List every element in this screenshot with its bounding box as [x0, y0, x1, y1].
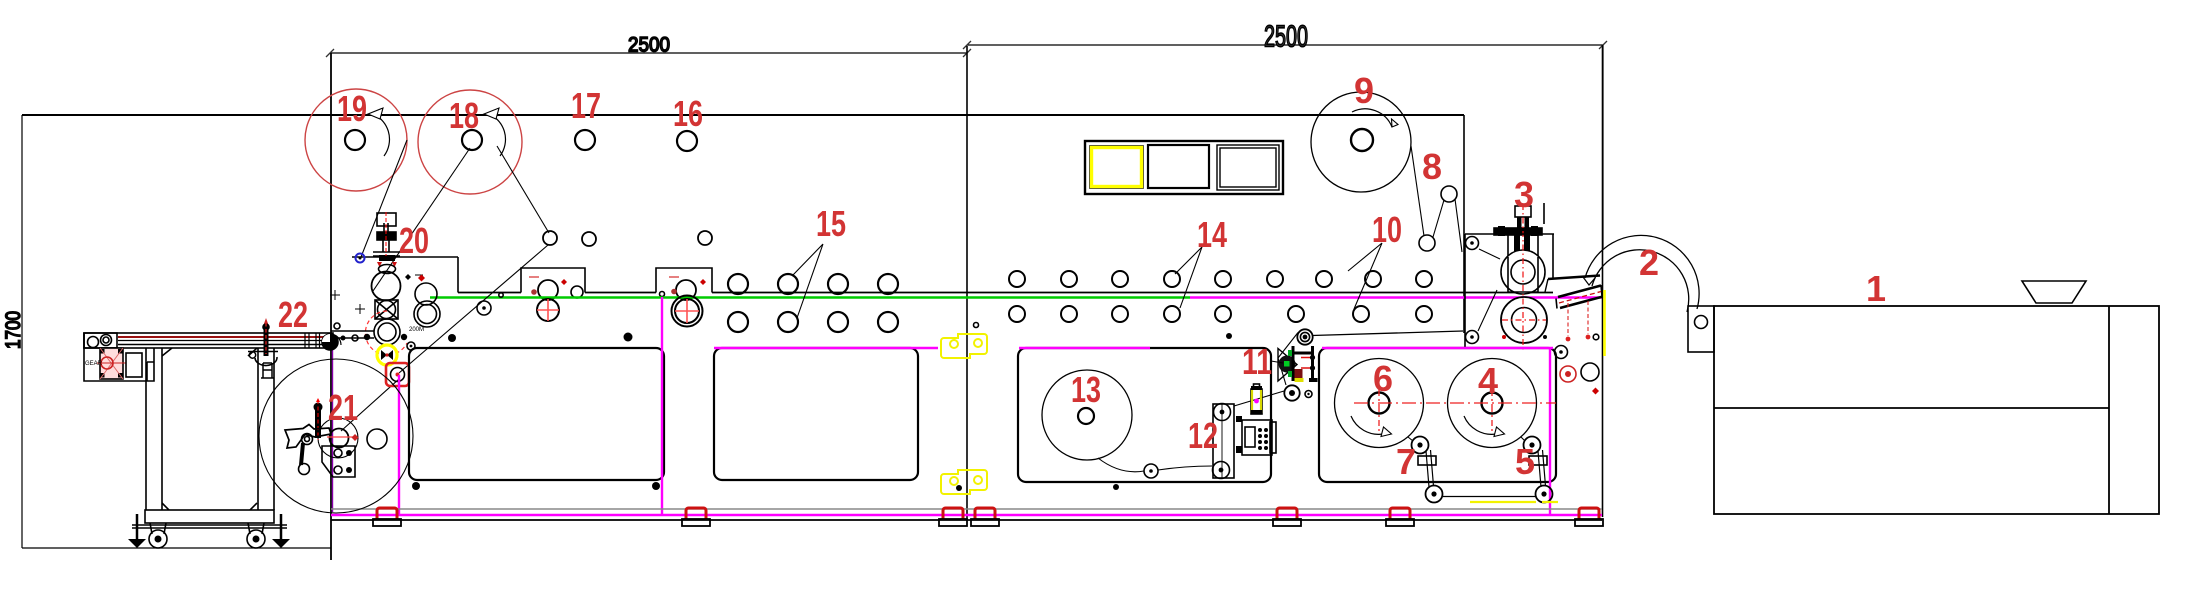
svg-text:21: 21 [328, 387, 358, 428]
svg-text:15: 15 [816, 203, 846, 244]
svg-text:12: 12 [1188, 415, 1218, 456]
svg-text:GEAR: GEAR [85, 361, 103, 367]
svg-text:2: 2 [1639, 242, 1659, 283]
svg-text:8: 8 [1422, 146, 1442, 187]
svg-text:1700: 1700 [2, 311, 25, 349]
svg-text:3: 3 [1514, 174, 1534, 215]
svg-text:6: 6 [1373, 358, 1393, 399]
svg-text:16: 16 [673, 93, 703, 134]
svg-text:1: 1 [1866, 268, 1886, 309]
svg-text:2500: 2500 [628, 34, 670, 57]
svg-text:22: 22 [278, 294, 308, 335]
svg-text:2500: 2500 [1264, 19, 1308, 54]
svg-text:20: 20 [399, 220, 429, 261]
svg-text:7: 7 [1396, 441, 1416, 482]
svg-text:10: 10 [1372, 209, 1402, 250]
svg-text:17: 17 [571, 85, 601, 126]
svg-text:19: 19 [337, 88, 367, 129]
svg-text:11: 11 [1242, 341, 1272, 382]
svg-text:5: 5 [1515, 441, 1535, 482]
svg-text:200M: 200M [409, 327, 424, 333]
svg-text:4: 4 [1478, 360, 1498, 401]
svg-text:14: 14 [1197, 214, 1227, 255]
svg-text:18: 18 [449, 95, 479, 136]
svg-text:9: 9 [1354, 70, 1374, 111]
svg-text:13: 13 [1071, 369, 1101, 410]
